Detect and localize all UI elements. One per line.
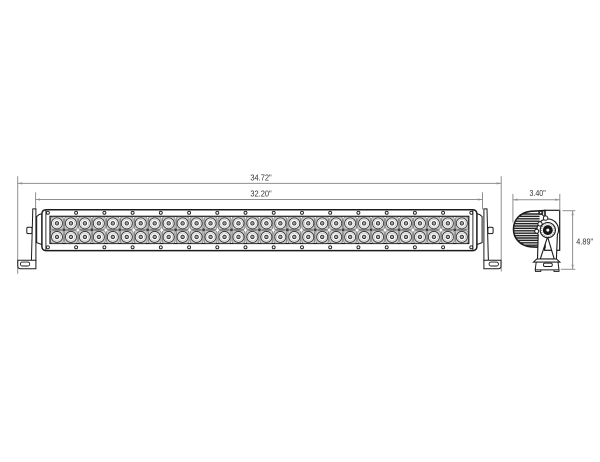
svg-text:3.40": 3.40" [530,188,546,198]
svg-text:32.20": 32.20" [250,189,271,199]
svg-text:4.89": 4.89" [576,236,593,246]
svg-text:34.72": 34.72" [250,173,271,183]
